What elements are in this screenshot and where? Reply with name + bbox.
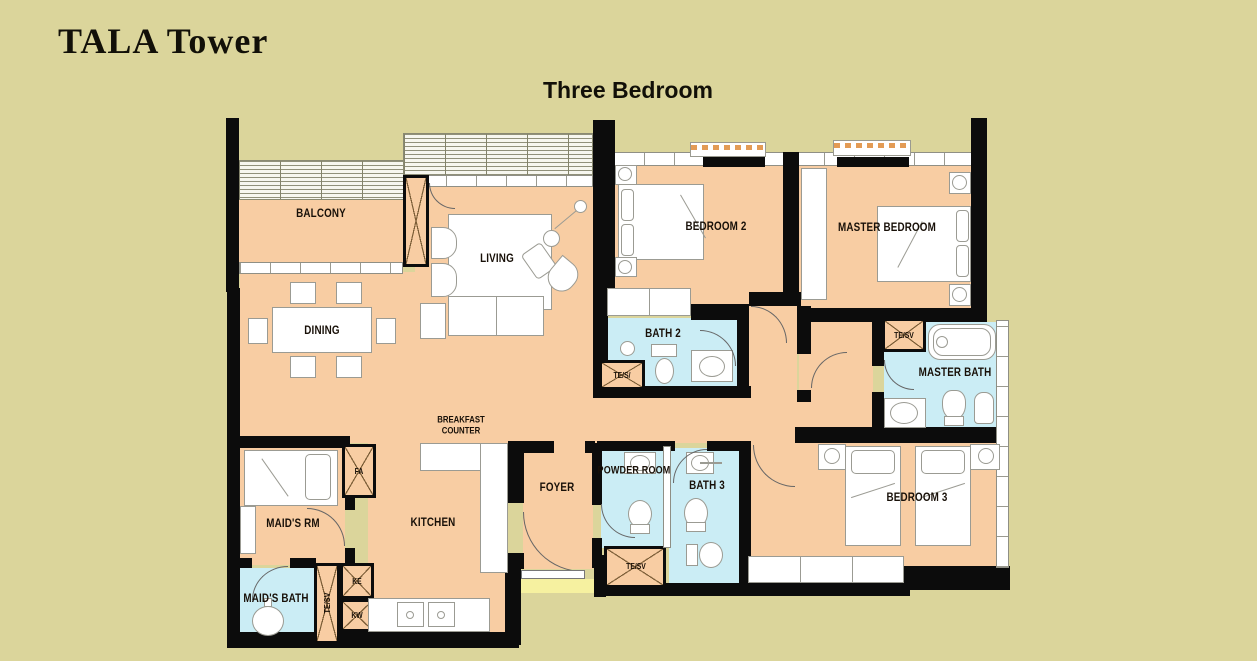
bath3-label: BATH 3 (689, 479, 725, 491)
maids-room-label: MAID'S RM (266, 517, 320, 529)
bedroom2-closet-line (649, 289, 650, 315)
breakfast-label-2: COUNTER (442, 426, 481, 436)
wall-maids-right-a (345, 498, 355, 510)
maids-pillow (305, 454, 331, 500)
bedroom3-closet-line (852, 557, 853, 582)
ke-label: KE (352, 577, 361, 586)
entry-door-leaf (521, 570, 585, 579)
bedroom2-window-wall (703, 157, 765, 167)
master-tub-faucet (936, 336, 948, 348)
master-toilet-base (944, 416, 964, 426)
living-planter-railing (403, 133, 593, 176)
master-bidet (974, 392, 994, 424)
bath2-shower-drain (620, 341, 635, 356)
wall-corridor-top (749, 292, 801, 306)
bedroom2-planter (690, 142, 766, 157)
living-column-shaft (403, 175, 429, 267)
bedroom3-lamp (978, 448, 994, 464)
master-basin (890, 402, 918, 424)
page-title: TALA Tower (58, 20, 268, 62)
living-floor-lamp (543, 230, 560, 247)
te-sv-maids-label: TE/SV (323, 593, 332, 614)
balcony-railing (238, 160, 404, 200)
te-sv-master-label: TE/SV (894, 331, 914, 340)
powder-room-label: POWDER ROOM (598, 466, 671, 477)
bedroom2-pillow (621, 189, 634, 221)
dining-label: DINING (304, 324, 339, 336)
master-closet (801, 168, 827, 300)
wall-foyer-top-b (585, 441, 595, 453)
bedroom2-pillow (621, 224, 634, 256)
wall-maids-top (238, 436, 350, 448)
kitchen-sink-drain (406, 611, 414, 619)
powder-bath3-divider (663, 446, 671, 548)
bedroom2-lamp (618, 260, 632, 274)
living-ottoman (420, 303, 446, 339)
kw-label: KW (351, 611, 362, 620)
master-pillow (956, 210, 969, 242)
maids-bath-label: MAID'S BATH (243, 592, 308, 604)
master-bath-label: MASTER BATH (919, 366, 992, 378)
master-lamp (952, 175, 967, 190)
wall-bedroom-divider (783, 152, 799, 306)
bedroom2-label: BEDROOM 2 (685, 220, 746, 232)
wall-foyer-kitchen-a (508, 443, 524, 503)
wall-maidsbath-top-a (238, 558, 252, 568)
balcony-sliding-door (239, 262, 403, 274)
dining-chair (336, 282, 362, 304)
floor-plan-page: TALA Tower Three Bedroom Type E (191Sqm) (0, 0, 1257, 661)
bath3-bidet-tank (686, 544, 698, 566)
dining-chair (336, 356, 362, 378)
wall-masterbath-left-b (872, 392, 884, 430)
master-pillow (956, 245, 969, 277)
wall-left-main (227, 288, 240, 648)
wall-bottom-right (902, 566, 1010, 590)
bath2-toilet-bowl (655, 358, 674, 384)
master-lamp (952, 287, 967, 302)
wall-entry-step (505, 567, 521, 645)
kitchen-label: KITCHEN (411, 516, 456, 528)
dining-chair (290, 282, 316, 304)
dining-chair (376, 318, 396, 344)
lamp-head (574, 200, 587, 213)
bath3-toilet-base (686, 522, 706, 532)
master-window-wall (837, 157, 909, 167)
bedroom3-pillow (921, 450, 965, 474)
kitchen-counter-right (480, 443, 508, 573)
dining-chair (248, 318, 268, 344)
bath2-label: BATH 2 (645, 327, 681, 339)
maids-shower (252, 606, 284, 636)
maids-closet (240, 506, 256, 554)
kitchen-sink-drain (437, 611, 445, 619)
wall-bath2-right (737, 304, 749, 398)
master-bedroom-label: MASTER BEDROOM (838, 221, 936, 233)
fa-label: FA (355, 467, 364, 476)
bedroom3-label: BEDROOM 3 (886, 491, 947, 503)
bedroom3-pillow (851, 450, 895, 474)
bedroom2-lamp (618, 167, 632, 181)
bedroom3-closet-line (800, 557, 801, 582)
bath3-bidet-bowl (699, 542, 723, 568)
wall-living-column (593, 120, 615, 292)
wall-corridor-south-b (707, 441, 743, 451)
entry-threshold (519, 579, 595, 593)
wall-master-right (971, 118, 987, 322)
living-armchair (431, 263, 457, 297)
sofa-divider (496, 297, 497, 335)
te-sv-bath2-label: TE/S/ (613, 371, 630, 380)
te-sv-foyer-label: TE/SV (626, 562, 646, 571)
bedroom3-lamp (824, 448, 840, 464)
dining-chair (290, 356, 316, 378)
balcony-label: BALCONY (296, 207, 346, 219)
subtitle-line1: Three Bedroom (533, 76, 723, 105)
wall-bedroom3-top (795, 427, 1008, 443)
living-label: LIVING (480, 252, 514, 264)
wall-maidsbath-top-b (290, 558, 316, 568)
master-planter (833, 140, 911, 156)
wall-left-balcony (226, 118, 239, 292)
wall-master-door-a (797, 306, 811, 354)
wall-master-door-b (797, 390, 811, 402)
living-armchair (431, 227, 457, 259)
bedroom3-closet (748, 556, 904, 583)
foyer-label: FOYER (540, 481, 575, 493)
breakfast-label-1: BREAKFAST (437, 415, 485, 425)
bath2-toilet-tank (651, 344, 677, 357)
